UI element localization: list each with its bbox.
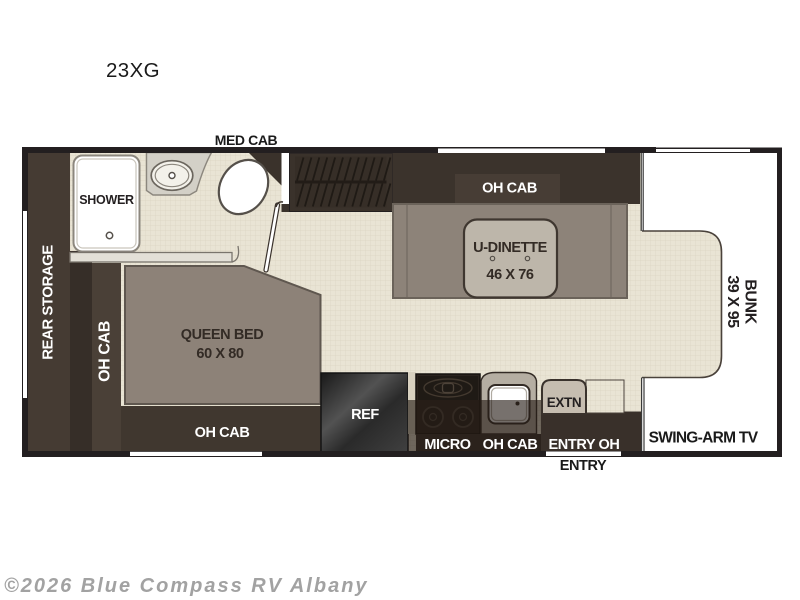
svg-text:39 X 95: 39 X 95: [724, 275, 741, 328]
svg-text:BUNK: BUNK: [742, 279, 759, 324]
svg-text:MICRO: MICRO: [424, 437, 470, 453]
svg-text:ENTRY: ENTRY: [560, 458, 607, 474]
svg-text:OH CAB: OH CAB: [483, 437, 538, 453]
svg-text:U-DINETTE: U-DINETTE: [473, 240, 547, 256]
svg-text:60 X 80: 60 X 80: [196, 346, 244, 362]
svg-text:REAR STORAGE: REAR STORAGE: [40, 245, 57, 360]
svg-text:OH CAB: OH CAB: [482, 181, 537, 197]
svg-text:ENTRY OH: ENTRY OH: [549, 437, 620, 453]
svg-text:OH CAB: OH CAB: [97, 321, 114, 382]
svg-text:46 X 76: 46 X 76: [486, 267, 534, 283]
svg-text:QUEEN BED: QUEEN BED: [181, 327, 264, 343]
svg-text:OH CAB: OH CAB: [195, 425, 250, 441]
svg-text:SWING-ARM TV: SWING-ARM TV: [649, 430, 759, 447]
svg-text:SHOWER: SHOWER: [79, 193, 134, 207]
svg-text:REF: REF: [351, 407, 379, 423]
svg-text:©2026 Blue Compass RV Albany: ©2026 Blue Compass RV Albany: [4, 575, 369, 597]
svg-text:MED CAB: MED CAB: [215, 132, 278, 148]
svg-text:23XG: 23XG: [106, 59, 160, 82]
svg-text:EXTN: EXTN: [547, 395, 581, 410]
